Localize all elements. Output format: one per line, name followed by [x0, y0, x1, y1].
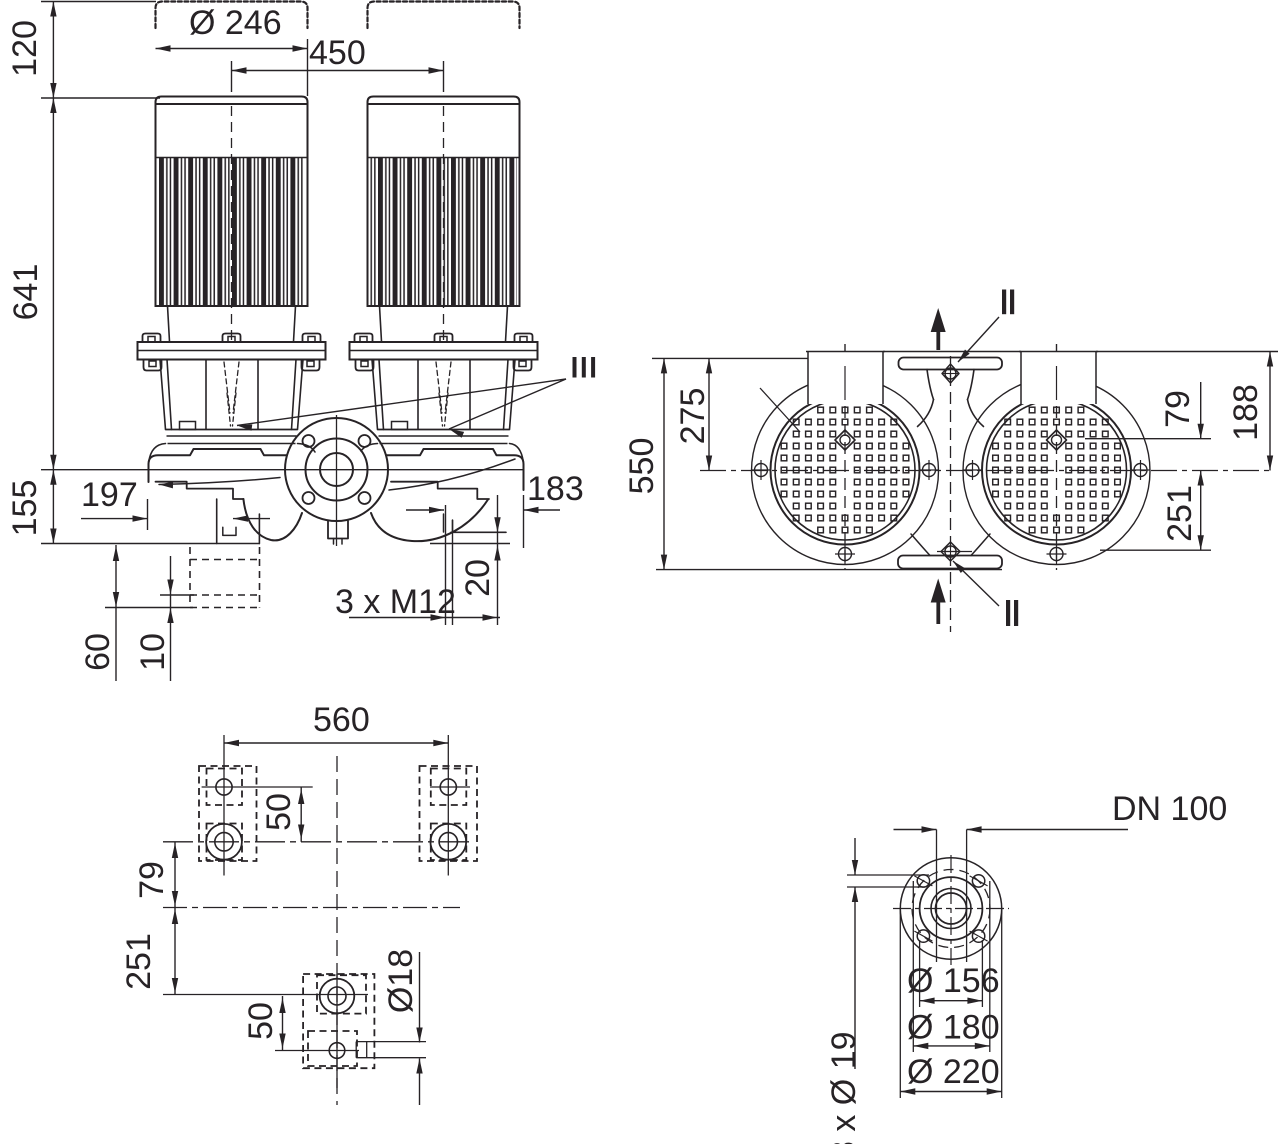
svg-text:188: 188: [1227, 384, 1265, 441]
svg-text:251: 251: [1161, 485, 1199, 542]
svg-text:50: 50: [242, 1002, 280, 1040]
svg-text:50: 50: [260, 793, 298, 831]
svg-text:550: 550: [623, 438, 661, 495]
svg-text:641: 641: [7, 264, 45, 321]
svg-text:10: 10: [134, 633, 172, 671]
svg-text:60: 60: [79, 633, 117, 671]
svg-text:183: 183: [527, 470, 584, 508]
svg-text:275: 275: [674, 388, 712, 445]
svg-text:Ø 220: Ø 220: [907, 1053, 1000, 1091]
svg-text:Ø 180: Ø 180: [907, 1009, 1000, 1047]
svg-text:197: 197: [81, 476, 138, 514]
svg-text:155: 155: [6, 480, 44, 537]
svg-text:20: 20: [459, 559, 497, 597]
svg-text:79: 79: [133, 861, 171, 899]
svg-text:79: 79: [1159, 390, 1197, 428]
svg-text:3 x M12: 3 x M12: [335, 583, 456, 621]
svg-text:Ø 156: Ø 156: [907, 962, 1000, 1000]
svg-text:450: 450: [309, 34, 366, 72]
svg-text:DN 100: DN 100: [1112, 790, 1227, 828]
svg-text:Ø 246: Ø 246: [189, 4, 282, 42]
svg-text:8 x Ø 19: 8 x Ø 19: [825, 1031, 863, 1144]
svg-text:560: 560: [313, 701, 370, 739]
svg-text:120: 120: [6, 20, 44, 77]
svg-text:Ø18: Ø18: [382, 949, 420, 1013]
svg-text:251: 251: [120, 933, 158, 990]
